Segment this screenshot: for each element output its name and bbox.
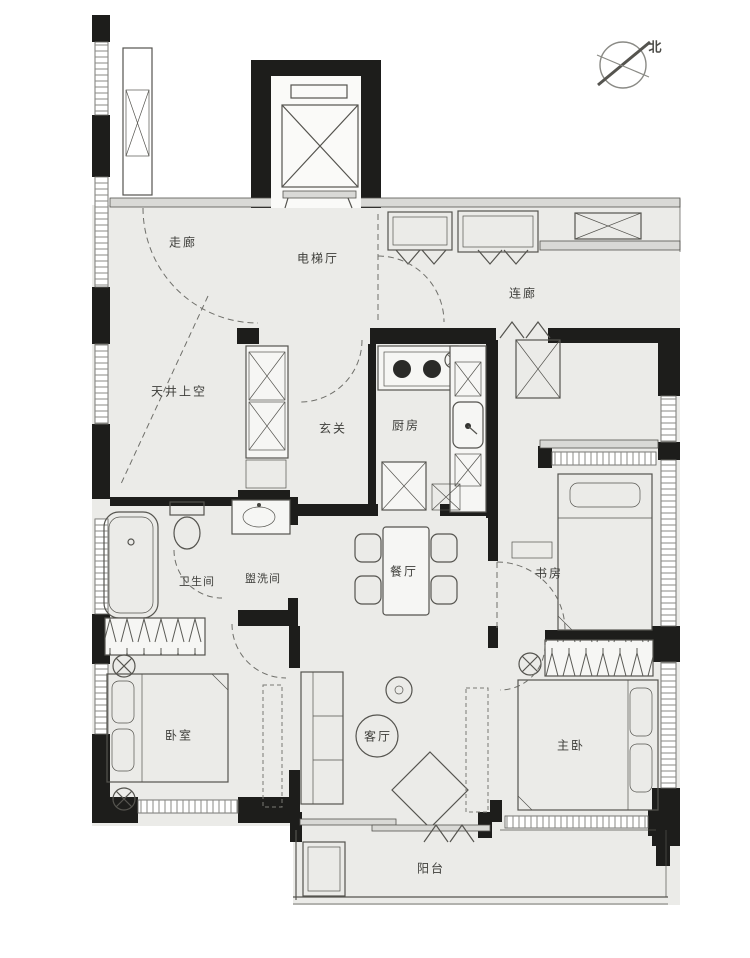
compass-north-label: 北	[648, 37, 661, 56]
elevator	[271, 76, 361, 208]
room-label-kitchen: 厨房	[392, 417, 420, 434]
room-label-elevator-hall: 电梯厅	[297, 250, 339, 267]
room-label-balcony: 阳台	[417, 860, 445, 877]
room-label-foyer: 玄关	[319, 420, 347, 437]
room-label-bathroom: 卫生间	[179, 573, 215, 589]
floor-plan-drawing	[0, 0, 750, 958]
room-label-master-bedroom: 主卧	[557, 737, 585, 754]
room-label-study: 书房	[535, 565, 563, 582]
room-label-washroom: 盥洗间	[245, 570, 281, 586]
room-label-living: 客厅	[364, 728, 392, 745]
room-label-link-corridor: 连廊	[509, 285, 537, 302]
floor-plan: 走廊 电梯厅 连廊 天井上空 玄关 厨房 卫生间 盥洗间 餐厅 书房 卧室 客厅…	[0, 0, 750, 958]
room-label-lightwell: 天井上空	[151, 383, 207, 400]
compass-icon	[597, 42, 650, 88]
room-label-bedroom: 卧室	[165, 727, 193, 744]
room-label-dining: 餐厅	[390, 563, 418, 580]
shaft-duct	[123, 48, 152, 195]
room-label-corridor: 走廊	[169, 234, 197, 251]
